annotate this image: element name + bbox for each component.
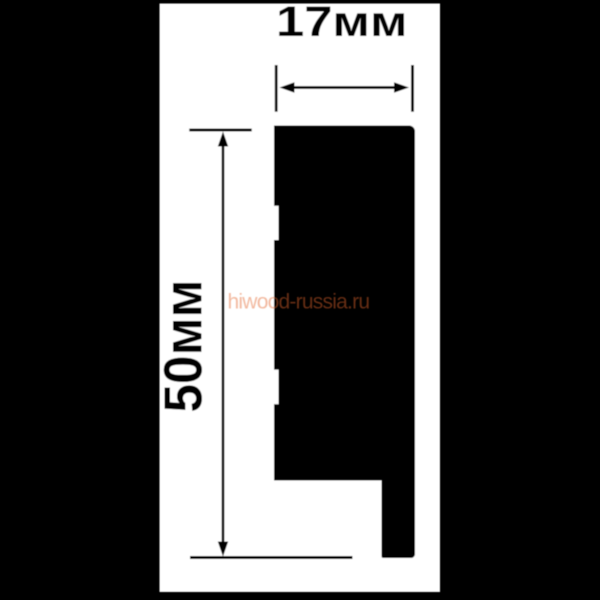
svg-text:17мм: 17мм [276, 0, 408, 46]
svg-text:50мм: 50мм [154, 280, 214, 413]
svg-text:hiwood-russia.ru: hiwood-russia.ru [228, 291, 371, 314]
